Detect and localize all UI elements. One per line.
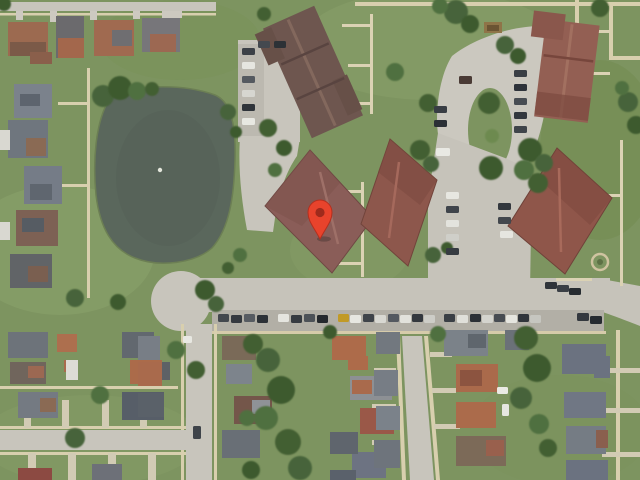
car <box>242 76 255 83</box>
top-road <box>0 2 216 11</box>
sidewalk <box>212 331 606 334</box>
driveway <box>602 408 640 413</box>
tree <box>145 82 159 96</box>
car <box>545 282 557 289</box>
island-shrub <box>485 129 499 143</box>
house-roof <box>138 336 160 360</box>
tree <box>523 354 551 382</box>
walkway <box>592 72 610 75</box>
walkway <box>556 278 592 281</box>
shed-roof <box>57 334 77 352</box>
tree <box>618 92 638 112</box>
car <box>317 315 328 323</box>
sidewalk <box>0 452 186 455</box>
tree <box>208 296 224 312</box>
tree <box>243 334 263 354</box>
tree <box>514 326 538 350</box>
house-roof <box>486 440 504 456</box>
tree <box>510 48 526 64</box>
house-roof <box>26 138 46 156</box>
tree <box>195 280 215 300</box>
car <box>514 98 527 105</box>
house-roof <box>8 332 48 358</box>
car <box>506 315 517 323</box>
street <box>0 430 188 450</box>
house-roof <box>376 332 400 354</box>
car <box>500 231 513 238</box>
house-roof <box>596 430 608 448</box>
sidewalk <box>214 324 217 480</box>
car <box>470 314 481 322</box>
house-roof <box>30 184 52 200</box>
tree <box>496 36 514 54</box>
tree <box>110 294 126 310</box>
tree <box>423 156 439 172</box>
car <box>242 90 255 97</box>
driveway <box>68 453 76 480</box>
tree <box>187 361 205 379</box>
car <box>231 315 242 323</box>
sidewalk <box>87 68 90 298</box>
car <box>444 314 455 322</box>
tree <box>91 386 109 404</box>
house-roof <box>112 30 132 46</box>
tree <box>254 406 278 430</box>
tree <box>528 173 548 193</box>
car <box>274 41 286 48</box>
car <box>514 126 527 133</box>
pond-fountain <box>158 168 162 172</box>
car <box>375 315 386 323</box>
house-roof <box>468 334 486 348</box>
walkway <box>370 14 373 114</box>
house-roof <box>92 464 122 480</box>
car <box>291 315 302 323</box>
tree <box>256 348 280 372</box>
tree <box>275 429 301 455</box>
driveway <box>16 11 23 20</box>
house-roof <box>22 218 44 232</box>
driveway <box>148 453 156 480</box>
car <box>350 315 361 323</box>
driveway <box>50 11 57 22</box>
car <box>514 84 527 91</box>
tree <box>108 76 132 100</box>
car <box>514 70 527 77</box>
car <box>242 118 255 125</box>
satellite-canvas <box>0 0 640 480</box>
house-roof <box>40 398 56 412</box>
house-roof <box>376 406 400 430</box>
driveway <box>90 11 97 20</box>
house-roof <box>138 393 164 417</box>
house-roof <box>330 470 356 480</box>
tree <box>65 428 85 448</box>
car <box>518 314 529 322</box>
walkway <box>58 102 87 105</box>
car <box>497 387 508 394</box>
house-roof <box>564 392 606 418</box>
tree <box>430 326 446 342</box>
car <box>482 315 493 323</box>
driveway <box>0 222 10 240</box>
tree <box>267 376 295 404</box>
island-tree <box>479 156 503 180</box>
driveway <box>102 400 109 428</box>
car <box>400 315 411 323</box>
tree <box>239 410 255 426</box>
car <box>459 76 472 84</box>
house-roof <box>28 266 48 282</box>
tree <box>259 119 277 137</box>
tree <box>539 439 557 457</box>
tree <box>230 126 242 138</box>
tree <box>220 104 236 120</box>
apartment-wing <box>531 11 566 41</box>
car <box>242 62 255 69</box>
cul-de-sac <box>151 271 211 331</box>
house-roof <box>352 380 372 394</box>
tree <box>425 247 441 263</box>
tree <box>242 461 260 479</box>
car <box>446 234 459 241</box>
tree <box>268 163 282 177</box>
driveway <box>133 11 140 19</box>
car <box>363 314 374 322</box>
driveway <box>66 360 78 380</box>
car <box>457 315 468 323</box>
driveway <box>602 452 640 457</box>
house-roof <box>566 460 608 480</box>
car <box>436 148 450 156</box>
map-viewport[interactable] <box>0 0 640 480</box>
sidewalk <box>0 386 178 389</box>
car <box>498 217 511 224</box>
tree <box>410 140 430 160</box>
tree <box>615 81 629 95</box>
house-roof <box>456 402 496 428</box>
street <box>186 324 212 480</box>
car <box>193 426 201 439</box>
house-roof <box>226 364 252 384</box>
tree <box>323 325 337 339</box>
walkway <box>342 24 370 27</box>
car <box>434 106 447 113</box>
tree <box>461 15 479 33</box>
car <box>424 315 435 323</box>
car <box>257 315 268 323</box>
island-tree <box>478 92 500 114</box>
house-roof <box>18 468 52 480</box>
driveway <box>432 388 456 393</box>
house-roof <box>58 38 84 58</box>
top-sidewalk <box>0 13 216 16</box>
house-roof <box>330 432 358 454</box>
tree <box>66 289 84 307</box>
car <box>388 314 399 322</box>
path <box>609 56 640 60</box>
house-roof <box>374 440 400 468</box>
house-roof <box>594 356 610 378</box>
driveway <box>162 11 182 18</box>
car <box>502 404 509 416</box>
car <box>446 206 459 213</box>
tree <box>233 248 247 262</box>
tree <box>276 140 292 156</box>
tree <box>288 456 312 480</box>
house-roof <box>20 94 40 106</box>
tree <box>386 63 404 81</box>
car <box>498 203 511 210</box>
tree <box>510 387 532 409</box>
car <box>218 314 229 322</box>
dumpster-lid <box>487 25 499 31</box>
car <box>446 192 459 199</box>
car <box>494 314 505 322</box>
driveway <box>62 400 69 428</box>
car <box>569 288 581 295</box>
car <box>258 41 270 48</box>
tree <box>529 414 549 434</box>
walkway <box>620 140 623 286</box>
house-roof <box>348 356 368 370</box>
walkway <box>348 64 370 67</box>
car <box>446 220 459 227</box>
driveway <box>0 130 10 150</box>
house-roof <box>138 362 162 386</box>
house-roof <box>28 366 44 378</box>
car <box>338 314 349 322</box>
tree <box>167 341 185 359</box>
sidewalk <box>616 330 620 480</box>
pin-inner-circle <box>315 208 324 217</box>
car <box>434 120 447 127</box>
car <box>242 48 255 55</box>
house-roof <box>30 52 52 64</box>
tree <box>257 7 271 21</box>
car <box>446 248 459 255</box>
car <box>304 314 315 322</box>
car <box>278 314 289 322</box>
car <box>577 313 589 321</box>
tree <box>222 262 234 274</box>
garden-center <box>597 259 603 265</box>
car <box>590 316 602 324</box>
car <box>514 112 527 119</box>
car <box>242 104 255 111</box>
tree <box>128 82 146 100</box>
walkway <box>58 184 87 187</box>
pond-depth <box>116 110 220 246</box>
car <box>244 314 255 322</box>
house-roof <box>374 370 398 396</box>
tree <box>535 154 553 172</box>
house-roof <box>460 370 482 386</box>
car <box>183 336 192 343</box>
car <box>412 314 423 322</box>
house-roof <box>150 34 176 52</box>
car <box>557 285 569 292</box>
house-roof <box>222 430 260 458</box>
car <box>530 315 541 323</box>
